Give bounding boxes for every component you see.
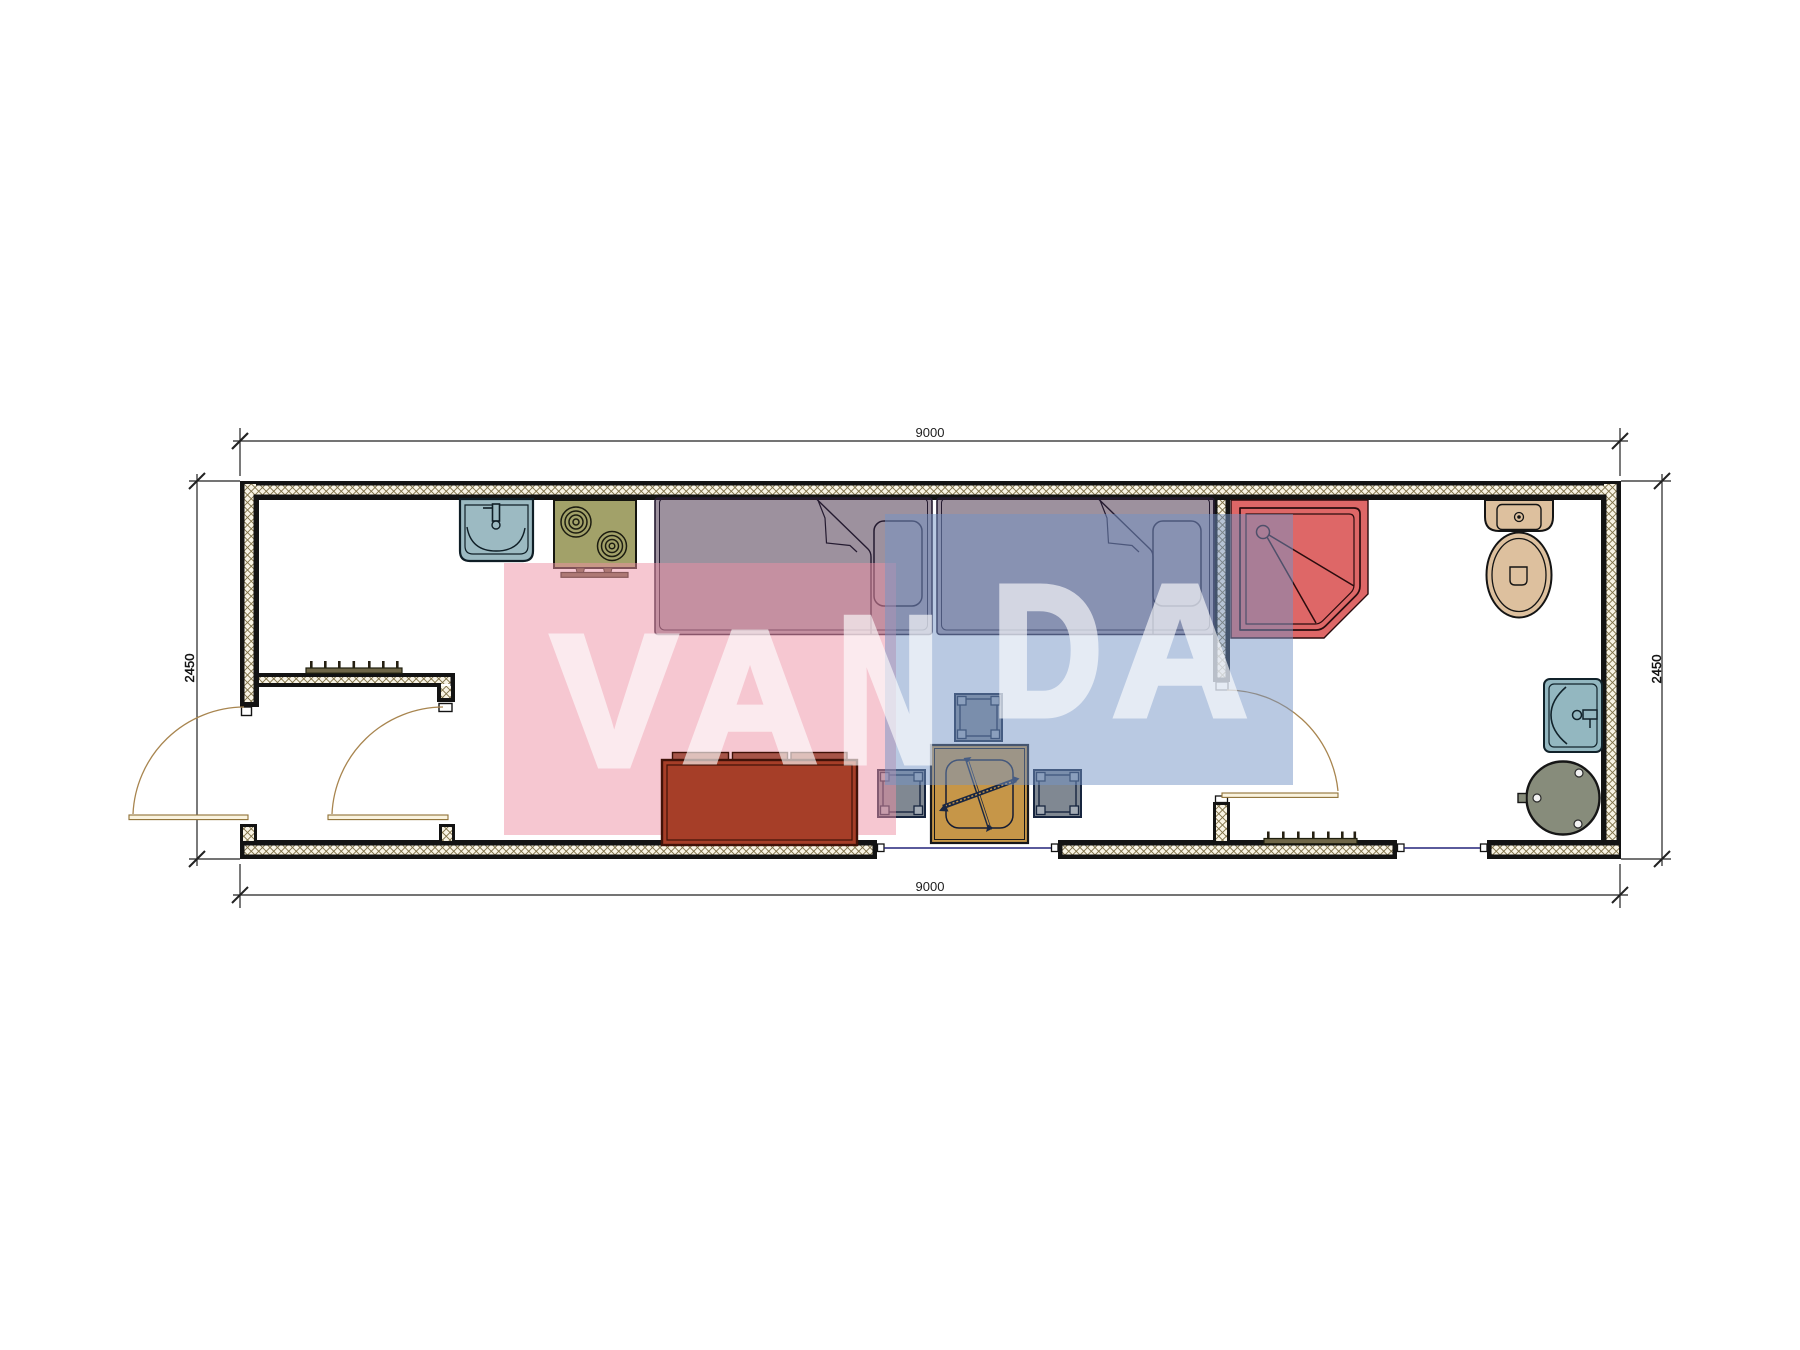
svg-text:A: A (1113, 548, 1247, 755)
svg-text:N: N (837, 573, 940, 807)
svg-text:A: A (683, 594, 817, 801)
svg-text:V: V (552, 598, 676, 805)
svg-text:9000: 9000 (916, 425, 945, 440)
svg-text:D: D (992, 548, 1102, 756)
svg-text:9000: 9000 (916, 879, 945, 894)
svg-text:2450: 2450 (182, 654, 197, 683)
svg-text:2450: 2450 (1649, 655, 1664, 684)
